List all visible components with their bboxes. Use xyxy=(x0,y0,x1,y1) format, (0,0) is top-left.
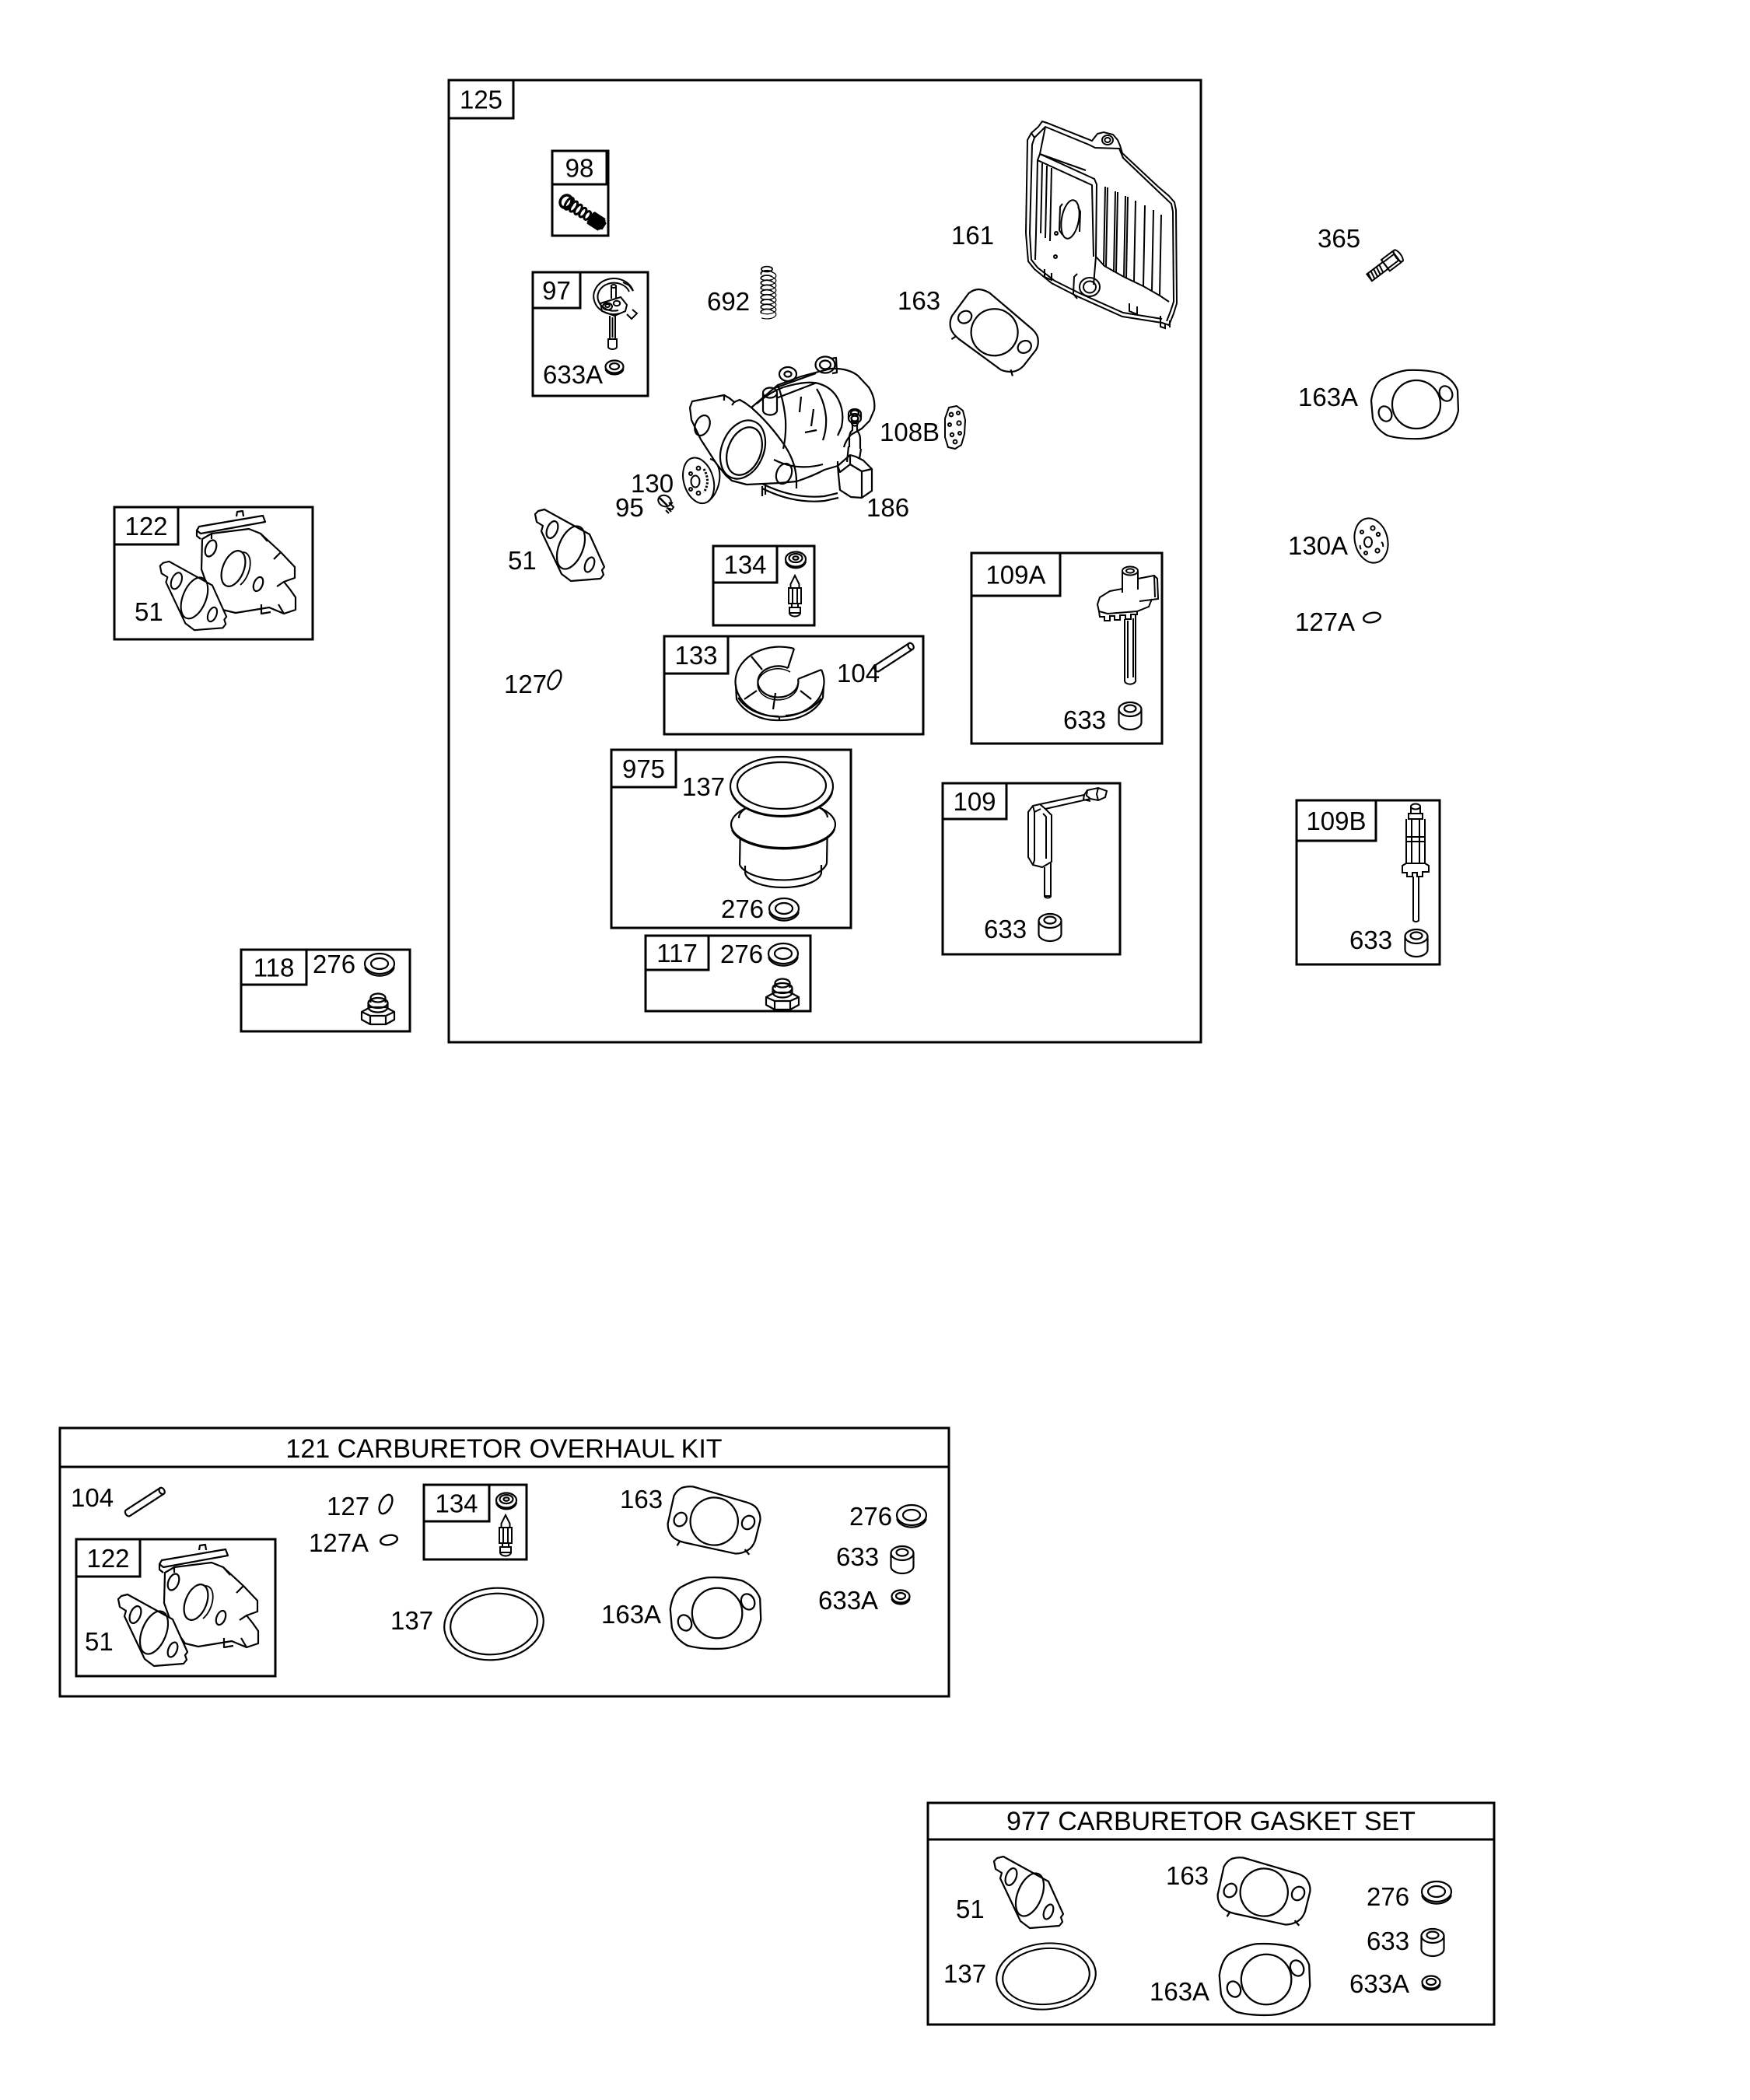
svg-text:51: 51 xyxy=(135,597,163,626)
svg-text:633: 633 xyxy=(1367,1927,1409,1955)
svg-text:276: 276 xyxy=(849,1502,892,1531)
svg-text:127A: 127A xyxy=(309,1528,369,1557)
svg-text:163A: 163A xyxy=(1150,1977,1209,2006)
svg-text:163: 163 xyxy=(620,1485,663,1514)
svg-text:109B: 109B xyxy=(1306,807,1366,835)
svg-text:692: 692 xyxy=(707,287,750,316)
svg-text:51: 51 xyxy=(85,1627,114,1656)
svg-text:108B: 108B xyxy=(880,418,940,446)
svg-text:163: 163 xyxy=(1166,1861,1209,1890)
svg-text:137: 137 xyxy=(390,1606,433,1635)
svg-text:161: 161 xyxy=(951,221,994,250)
svg-text:130A: 130A xyxy=(1288,531,1348,560)
svg-text:633: 633 xyxy=(1063,705,1106,734)
svg-text:276: 276 xyxy=(721,894,764,923)
svg-text:276: 276 xyxy=(720,940,763,968)
svg-text:125: 125 xyxy=(460,86,502,114)
svg-text:276: 276 xyxy=(1367,1882,1409,1911)
svg-text:104: 104 xyxy=(71,1483,114,1512)
svg-text:163: 163 xyxy=(898,286,940,315)
svg-text:977 CARBURETOR GASKET SET: 977 CARBURETOR GASKET SET xyxy=(1006,1807,1416,1836)
svg-text:117: 117 xyxy=(656,939,698,968)
svg-text:163A: 163A xyxy=(601,1600,661,1629)
svg-text:633: 633 xyxy=(984,915,1027,943)
svg-text:633: 633 xyxy=(1349,926,1392,954)
svg-text:104: 104 xyxy=(837,659,880,688)
svg-text:98: 98 xyxy=(565,154,594,183)
svg-text:109A: 109A xyxy=(985,561,1045,590)
svg-text:97: 97 xyxy=(542,276,571,305)
svg-text:122: 122 xyxy=(124,512,167,541)
svg-text:118: 118 xyxy=(254,954,295,982)
svg-text:121 CARBURETOR OVERHAUL KIT: 121 CARBURETOR OVERHAUL KIT xyxy=(285,1434,722,1464)
svg-text:365: 365 xyxy=(1318,224,1360,253)
svg-text:133: 133 xyxy=(674,641,717,670)
svg-text:633: 633 xyxy=(836,1542,879,1571)
svg-text:122: 122 xyxy=(86,1544,129,1573)
svg-text:163A: 163A xyxy=(1298,383,1358,411)
svg-text:127: 127 xyxy=(504,670,547,698)
svg-text:137: 137 xyxy=(682,772,725,801)
svg-text:134: 134 xyxy=(435,1489,478,1518)
svg-text:134: 134 xyxy=(723,551,766,579)
svg-text:633A: 633A xyxy=(1349,1969,1409,1998)
svg-text:633A: 633A xyxy=(543,360,603,389)
svg-text:127A: 127A xyxy=(1295,607,1355,636)
svg-text:137: 137 xyxy=(943,1959,986,1988)
svg-text:51: 51 xyxy=(508,546,537,575)
svg-text:95: 95 xyxy=(615,493,644,522)
svg-text:276: 276 xyxy=(313,950,355,978)
svg-text:51: 51 xyxy=(956,1895,985,1923)
svg-text:975: 975 xyxy=(622,754,665,783)
svg-text:127: 127 xyxy=(327,1492,369,1521)
svg-text:186: 186 xyxy=(866,493,909,522)
svg-text:633A: 633A xyxy=(818,1586,878,1615)
svg-text:109: 109 xyxy=(953,787,996,816)
